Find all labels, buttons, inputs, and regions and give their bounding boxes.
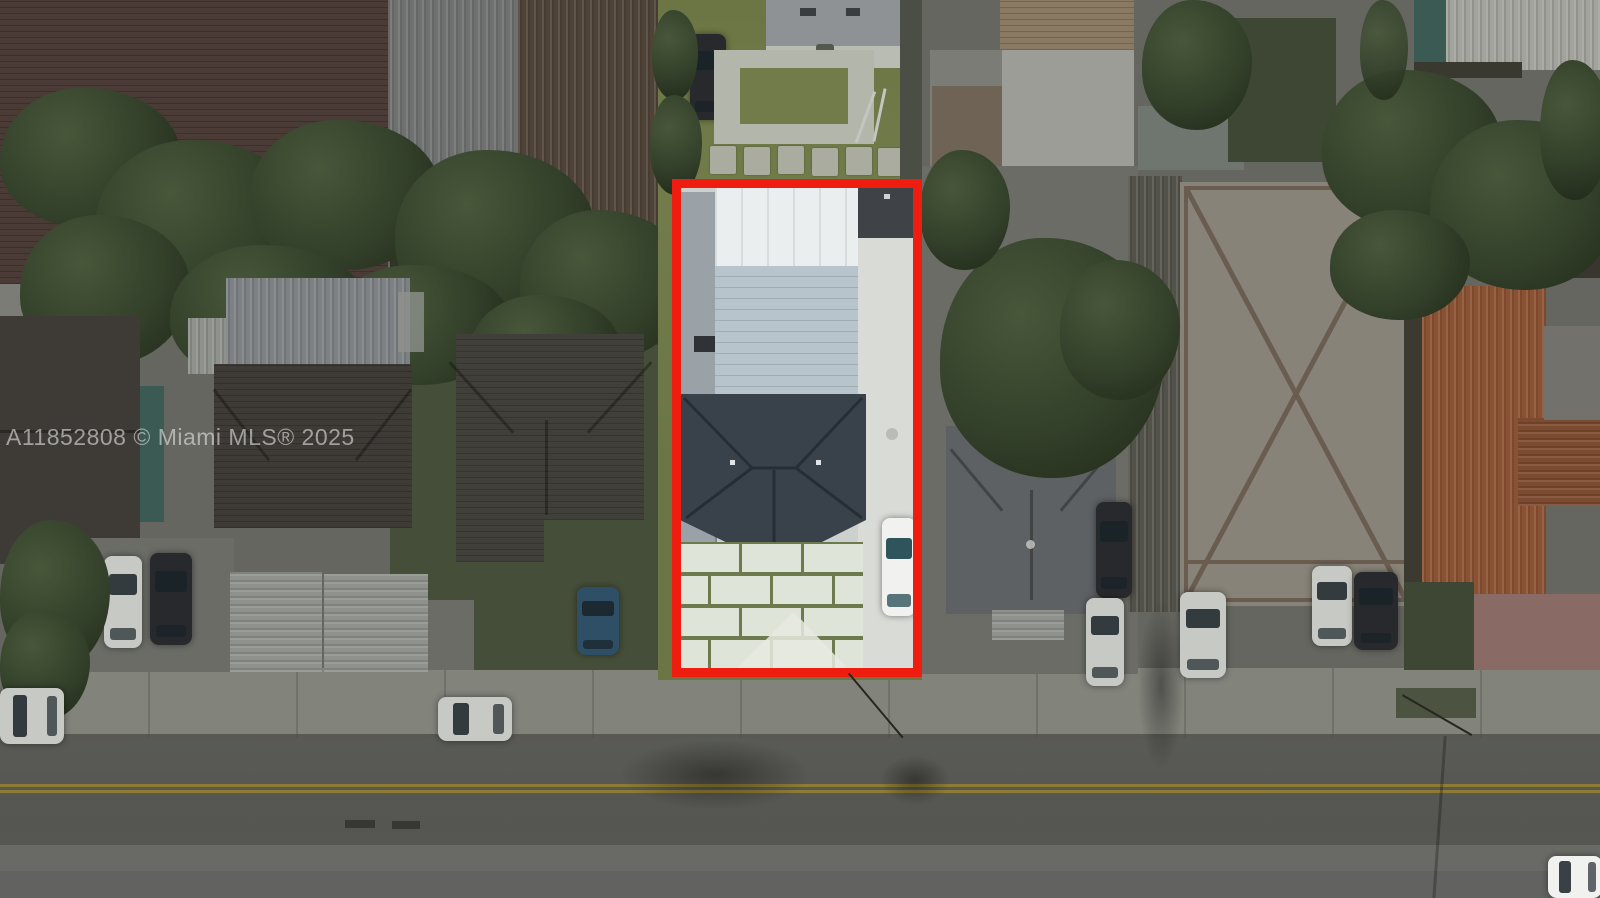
pink-concrete-patio (1470, 594, 1600, 670)
teal-house-wall (140, 386, 164, 522)
fence-line (900, 0, 922, 184)
stepping-stone (812, 148, 838, 176)
stepping-stone (846, 147, 872, 175)
stepping-stone (710, 146, 736, 174)
carport-post-structure (398, 292, 424, 352)
carport-roof (230, 572, 322, 672)
mls-watermark: A11852808 © Miami MLS® 2025 (6, 424, 355, 451)
carport-roof (324, 574, 428, 672)
road-mark (392, 821, 420, 829)
roof-vent (800, 8, 816, 16)
parked-suv-white (1312, 566, 1352, 646)
aerial-photo: A11852808 © Miami MLS® 2025 (0, 0, 1600, 898)
tree-canopy (1330, 210, 1470, 320)
roof-vent (1026, 540, 1035, 549)
street-car-white (438, 697, 512, 741)
tree-canopy (920, 150, 1010, 270)
stepping-stone (878, 148, 902, 176)
oil-stain (1138, 600, 1184, 770)
parked-car-white (1086, 598, 1124, 686)
palm-tree (1360, 0, 1408, 100)
tire-smudge (620, 740, 810, 810)
road-bottom-band (0, 871, 1600, 898)
tree-canopy (1142, 0, 1252, 130)
parked-car-white (1180, 592, 1226, 678)
backyard-grass-panel (740, 68, 848, 124)
parked-suv-dark (1096, 502, 1132, 598)
property-boundary-outline (672, 179, 922, 677)
neighbor-house-roof-wing (456, 500, 544, 562)
left-house-metal-roof (226, 278, 410, 366)
white-building-tan-section (1000, 0, 1134, 50)
tile-roof-extension (1518, 418, 1600, 506)
parked-suv-black (1354, 572, 1398, 650)
parked-car-black (150, 553, 192, 645)
tire-smudge (880, 755, 950, 805)
roof-vent (846, 8, 860, 16)
bush (652, 10, 698, 100)
roof-ridge (545, 420, 548, 515)
neighbor-house-roof (456, 334, 644, 520)
white-corrugated-roof (992, 610, 1064, 640)
grass-patch (1404, 582, 1474, 670)
parked-car-white (104, 556, 142, 648)
road-light-band (0, 845, 1600, 871)
street-car-white (1548, 856, 1600, 898)
tree-canopy (1540, 60, 1600, 200)
rear-neighbor-roof (766, 0, 906, 48)
gray-roof-right (1544, 326, 1600, 420)
stepping-stone (778, 146, 804, 174)
wall-strip (1404, 286, 1424, 596)
teal-roof-section (1414, 0, 1446, 64)
street-car-white (0, 688, 64, 744)
stepping-stone (744, 147, 770, 175)
parked-car-blue (577, 587, 619, 655)
tree-canopy (1060, 260, 1180, 400)
road-mark (345, 820, 375, 828)
